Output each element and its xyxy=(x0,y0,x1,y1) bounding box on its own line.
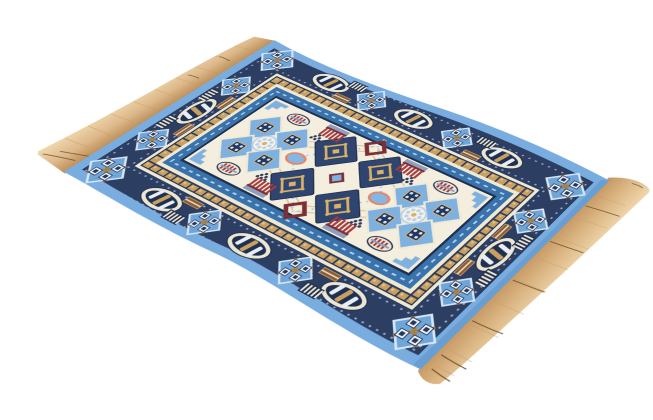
magic-carpet-illustration xyxy=(0,0,653,420)
carpet-perspective-warp xyxy=(57,38,610,372)
carpet-svg xyxy=(57,38,610,372)
